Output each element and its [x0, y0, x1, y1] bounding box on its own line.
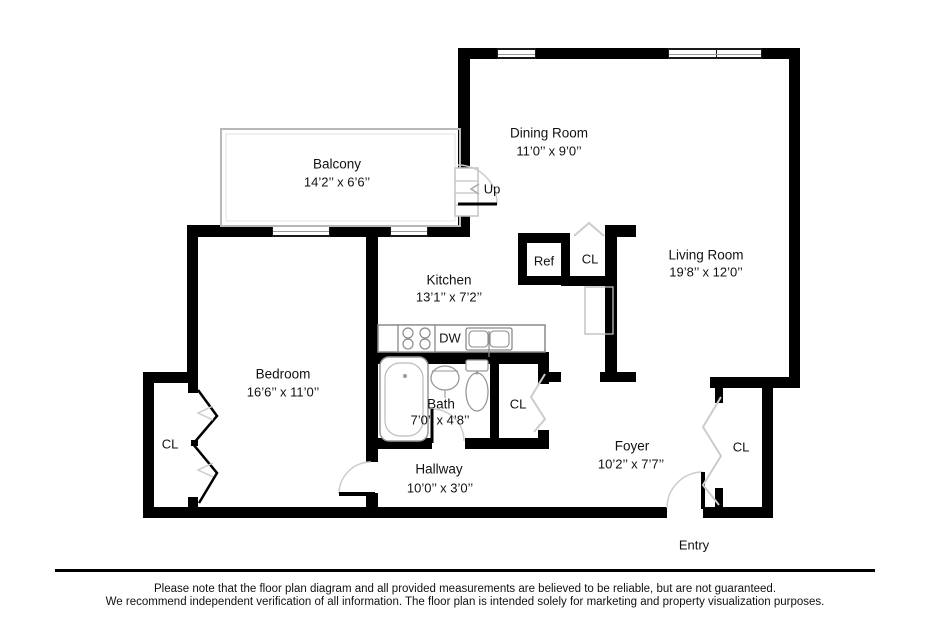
- room-label-kitchen: Kitchen: [426, 273, 471, 288]
- footer-divider: [55, 569, 875, 572]
- disclaimer-line-2: We recommend independent verification of…: [106, 596, 825, 608]
- wall: [703, 507, 773, 518]
- wall: [600, 372, 636, 382]
- up-arrow-icon: [471, 184, 479, 194]
- wall: [458, 48, 470, 170]
- room-label-bath: Bath: [427, 397, 455, 412]
- entry-door-arc: [667, 472, 703, 508]
- room-dims-bedroom: 16’6’’ x 11’0’’: [247, 385, 320, 400]
- bedroom-closet-bifold: [193, 390, 217, 503]
- wall: [188, 383, 198, 393]
- wall: [378, 352, 549, 364]
- kitchen-counter: [378, 325, 545, 352]
- closet-label-kitchen: CL: [582, 252, 599, 267]
- wall: [143, 507, 667, 518]
- window-symbol: [390, 225, 428, 237]
- wall: [605, 225, 636, 237]
- room-dims-living: 19’8’’ x 12’0’’: [669, 265, 742, 280]
- kitchen-closet-bifold: [574, 223, 604, 236]
- wall: [366, 493, 378, 507]
- wall: [762, 388, 773, 518]
- wall: [191, 440, 198, 446]
- window-symbol: [497, 48, 536, 59]
- wall: [715, 488, 723, 507]
- bath-sink-symbol: [431, 366, 459, 390]
- room-dims-kitchen: 13’1’’ x 7’2’’: [416, 290, 482, 305]
- room-label-dining: Dining Room: [510, 126, 588, 141]
- room-dims-balcony: 14’2’’ x 6’6’’: [304, 175, 370, 190]
- wall: [187, 225, 272, 237]
- dishwasher-label: DW: [439, 331, 461, 346]
- wall: [330, 225, 390, 237]
- room-label-balcony: Balcony: [313, 157, 361, 172]
- entry-label: Entry: [679, 538, 709, 553]
- stairs-up-label: Up: [484, 182, 501, 197]
- wall: [605, 237, 617, 377]
- room-label-foyer: Foyer: [615, 439, 650, 454]
- bedroom-door-arc: [339, 462, 371, 494]
- wall: [143, 372, 154, 518]
- wall: [538, 430, 549, 449]
- wall: [187, 225, 198, 383]
- stove-symbol: [398, 325, 435, 352]
- wall: [490, 364, 499, 438]
- wall: [715, 377, 723, 403]
- wall: [366, 237, 378, 462]
- wall: [465, 438, 549, 449]
- window-symbol: [272, 225, 330, 237]
- wall: [789, 48, 800, 388]
- closet-label-bath: CL: [510, 397, 527, 412]
- wall: [561, 276, 614, 286]
- closet-label-foyer: CL: [733, 440, 750, 455]
- wall: [458, 203, 470, 237]
- room-dims-hallway: 10’0’’ x 3’0’’: [407, 481, 473, 496]
- wall: [188, 497, 198, 507]
- floor-plan-canvas: Balcony 14’2’’ x 6’6’’ Dining Room 11’0’…: [0, 0, 930, 620]
- room-label-hallway: Hallway: [415, 462, 462, 477]
- wall: [547, 372, 561, 382]
- kitchen-sink-symbol: [466, 328, 512, 350]
- room-label-bedroom: Bedroom: [256, 367, 311, 382]
- room-label-living: Living Room: [668, 248, 743, 263]
- window-symbol: [668, 48, 762, 59]
- wall: [710, 377, 800, 388]
- disclaimer-line-1: Please note that the floor plan diagram …: [154, 583, 776, 595]
- refrigerator-label: Ref: [534, 254, 554, 269]
- bathtub-symbol: [380, 357, 428, 441]
- room-dims-bath: 7’0’’ x 4’8’’: [410, 413, 469, 428]
- wall: [366, 438, 432, 449]
- room-dims-foyer: 10’2’’ x 7’7’’: [598, 457, 664, 472]
- wall: [536, 48, 668, 59]
- closet-label-bedroom: CL: [162, 437, 179, 452]
- room-dims-dining: 11’0’’ x 9’0’’: [516, 144, 581, 159]
